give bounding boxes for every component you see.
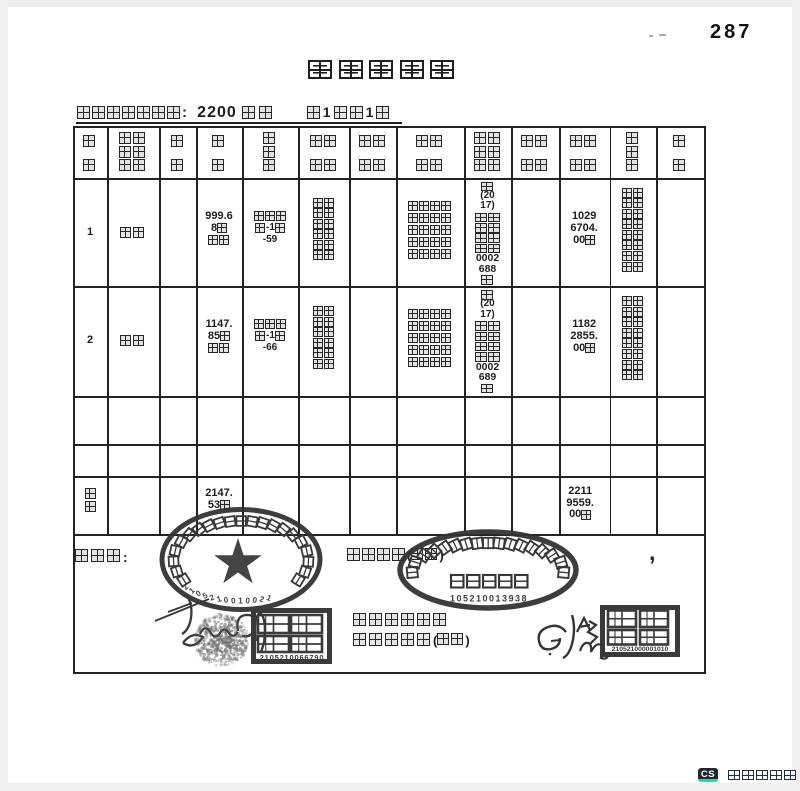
svg-text:105210013938: 105210013938: [450, 594, 528, 604]
svg-text:2: 2: [259, 594, 266, 604]
svg-text:2: 2: [208, 592, 216, 602]
svg-text:1: 1: [238, 597, 243, 606]
svg-text:0: 0: [245, 596, 251, 605]
svg-text:1: 1: [265, 593, 273, 603]
svg-text:2105210066790: 2105210066790: [260, 653, 325, 662]
svg-text:0: 0: [252, 595, 259, 605]
svg-text:0: 0: [231, 596, 237, 605]
svg-text:210521000001010: 210521000001010: [612, 646, 669, 653]
svg-text:0: 0: [223, 595, 230, 605]
